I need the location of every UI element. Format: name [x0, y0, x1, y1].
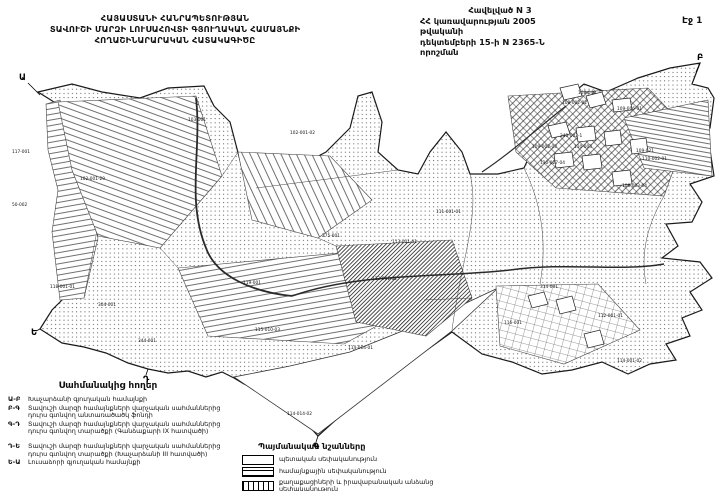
- parcel-label: 103-001: [188, 117, 206, 123]
- adjacent-land-item: Դ-ԵՏավուշի մարզի համայնքների վարչական սա…: [8, 443, 244, 458]
- parcel-label: 109-021: [636, 148, 654, 154]
- parcel-label: 112-001-01: [598, 313, 623, 319]
- legend-label: պետական սեփականություն: [279, 456, 449, 463]
- conventional-signs-legend: Պայմանական նշանները պետական սեփականությո…: [242, 441, 462, 491]
- adjacent-land-text: Լուսաձորի գյուղական համայնքի: [28, 459, 233, 467]
- parcel-label: 117-001: [12, 149, 30, 155]
- parcel-label: 119-001: [243, 280, 261, 286]
- parcel-label: 113-001-02: [372, 276, 397, 282]
- adjacent-land-item: Գ-ԴՏավուշի մարզի համայնքների վարչական սա…: [8, 421, 244, 436]
- adjacent-land-text: Տավուշի մարզի համայնքների վարչական սահմա…: [28, 443, 233, 458]
- adjacent-land-item: Ա-ԲԽաչարձանի գյուղական համայնքի: [8, 396, 244, 404]
- legend-swatch-private: [242, 481, 274, 491]
- parcel-label: 114-001-02: [617, 358, 642, 364]
- adjacent-lands-legend: Սահմանակից հողեր Ա-ԲԽաչարձանի գյուղական …: [8, 381, 244, 468]
- parcel-label: 108-002-02: [562, 100, 587, 106]
- legend-item: քաղաքացիների և իրավաբանական անձանց սեփակ…: [242, 479, 462, 491]
- boundary-letter: Բ: [697, 53, 703, 63]
- parcel-label: 118-001-01: [50, 284, 75, 290]
- parcel-label: 114-014-02: [287, 411, 312, 417]
- legend-label: համայնքային սեփականություն: [279, 468, 449, 475]
- adjacent-land-code: Բ-Գ: [8, 405, 28, 420]
- parcel-label: 275-001: [322, 233, 340, 239]
- parcel-label: 116-001: [504, 320, 522, 326]
- parcel-label: 108-040: [578, 90, 596, 96]
- parcel-label: 102-001-02: [290, 130, 315, 136]
- conventional-signs-title: Պայմանական նշանները: [258, 441, 462, 451]
- parcel-label: 50-002: [12, 202, 27, 208]
- parcel-label: 109-006-01: [617, 106, 642, 112]
- boundary-letter: Ե: [31, 328, 37, 338]
- parcel-label: 110-003: [574, 144, 592, 150]
- adjacent-land-text: Տավուշի մարզի համայնքների վարչական սահմա…: [28, 421, 233, 436]
- title-line-2: ՏԱՎՈՒՇԻ ՄԱՐԶԻ ԼՈՒՍԱՀՈՎՏԻ ԳՅՈՒՂԱԿԱՆ ՀԱՄԱՅ…: [30, 24, 320, 35]
- legend-item: պետական սեփականություն: [242, 455, 462, 465]
- parcel-label: 304-001: [98, 302, 116, 308]
- parcel-label: 109-002-03: [532, 144, 557, 150]
- title-line-1: ՀԱՅԱՍՏԱՆԻ ՀԱՆՐԱՊԵՏՈՒԹՅԱՆ: [30, 13, 320, 24]
- parcel-label: 110-027-04: [540, 160, 565, 166]
- parcel-label: 243-002-1: [560, 133, 583, 139]
- annex-line-1: Հավելված N 3: [420, 5, 580, 16]
- parcel-label: 114-014-01: [348, 345, 373, 351]
- annex-line-2: ՀՀ կառավարության 2005 թվականի: [420, 16, 580, 37]
- boundary-letter: Ա: [19, 73, 26, 83]
- annex-line-3: դեկտեմբերի 15-ի N 2365-Ն որոշման: [420, 37, 580, 58]
- map-sheet: ԱԲԳԴԵ 102-001-02103-001117-001102-001-29…: [0, 0, 722, 491]
- adjacent-land-code: Ա-Բ: [8, 396, 28, 404]
- parcel-label: 102-001-29: [80, 176, 105, 182]
- parcel-label: 115-010-03: [255, 327, 280, 333]
- adjacent-land-item: Ե-ԱԼուսաձորի գյուղական համայնքի: [8, 459, 244, 467]
- parcel-label: 344-001: [138, 338, 156, 344]
- boundary-letter-leader: [28, 83, 40, 95]
- adjacent-land-text: Տավուշի մարզի համայնքների վարչական սահմա…: [28, 405, 233, 420]
- annex-reference: Հավելված N 3 ՀՀ կառավարության 2005 թվակա…: [420, 5, 580, 58]
- adjacent-land-code: Ե-Ա: [8, 459, 28, 467]
- legend-swatch-state: [242, 455, 274, 465]
- adjacent-land-code: Դ-Ե: [8, 443, 28, 458]
- legend-item: համայնքային սեփականություն: [242, 467, 462, 477]
- parcel-label: 314-001: [540, 284, 558, 290]
- adjacent-land-item: Բ-ԳՏավուշի մարզի համայնքների վարչական սա…: [8, 405, 244, 420]
- map-legend-list: պետական սեփականությունհամայնքային սեփակա…: [242, 455, 462, 491]
- parcel-label: 111-001-01: [436, 209, 461, 215]
- adjacent-land-text: Խաչարձանի գյուղական համայնքի: [28, 396, 233, 404]
- parcel-label: 110-002-01: [642, 156, 667, 162]
- adjacent-lands-title: Սահմանակից հողեր: [8, 381, 208, 391]
- legend-label: քաղաքացիների և իրավաբանական անձանց սեփակ…: [279, 479, 449, 491]
- parcel-label: 113-001-01: [392, 239, 417, 245]
- sheet-title: ՀԱՅԱՍՏԱՆԻ ՀԱՆՐԱՊԵՏՈՒԹՅԱՆ ՏԱՎՈՒՇԻ ՄԱՐԶԻ Լ…: [30, 13, 320, 46]
- adjacent-lands-list: Ա-ԲԽաչարձանի գյուղական համայնքիԲ-ԳՏավուշ…: [8, 396, 244, 467]
- title-line-3: ՀՈՂԱՇԻՆԱՐԱՐԱԿԱՆ ՀԱՏԱԿԱԳԻԾԸ: [30, 35, 320, 46]
- page-number: Էջ 1: [682, 16, 702, 26]
- parcel-label: 108-003-04: [622, 183, 647, 189]
- adjacent-land-code: Գ-Դ: [8, 421, 28, 436]
- legend-swatch-community: [242, 467, 274, 477]
